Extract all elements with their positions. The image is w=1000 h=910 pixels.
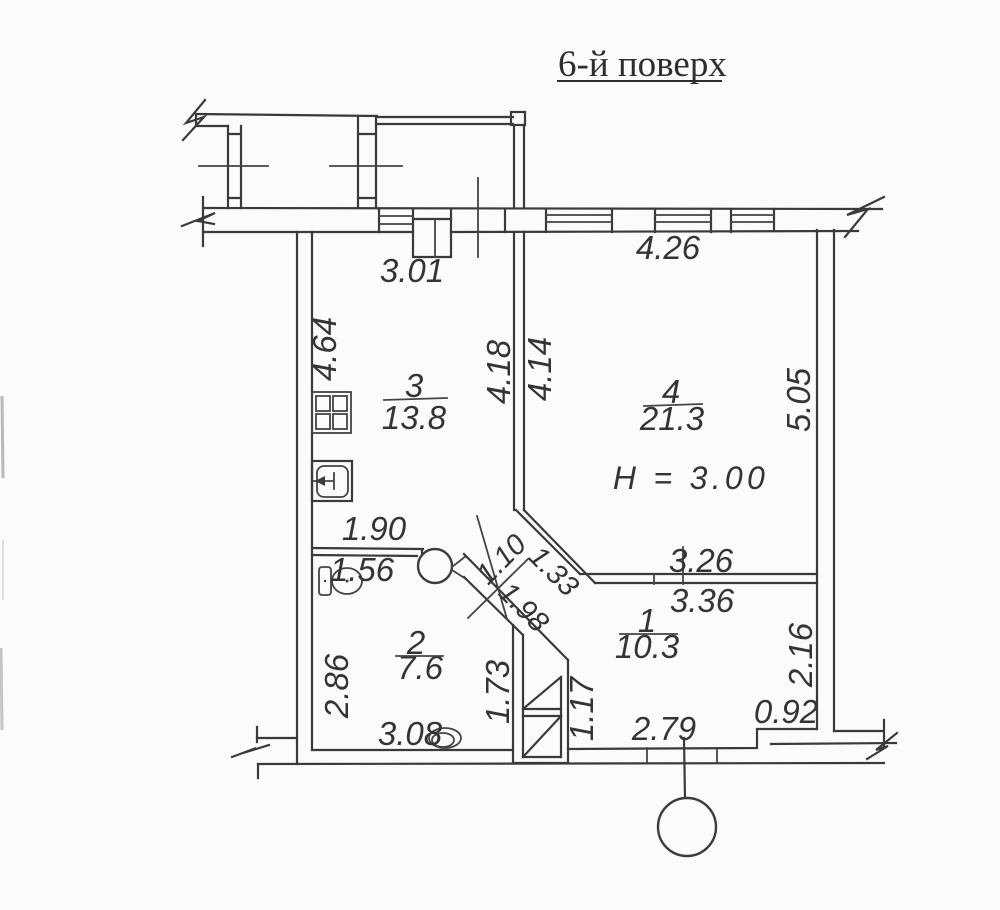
svg-text:0.92: 0.92 — [754, 693, 818, 730]
svg-text:6-й поверх: 6-й поверх — [558, 44, 727, 85]
svg-text:3.36: 3.36 — [670, 582, 735, 619]
svg-text:4.14: 4.14 — [521, 337, 558, 401]
svg-text:2.79: 2.79 — [631, 710, 696, 747]
svg-text:4.64: 4.64 — [306, 317, 343, 381]
svg-text:13.8: 13.8 — [382, 399, 447, 436]
svg-text:1.90: 1.90 — [342, 510, 407, 547]
svg-text:1.73: 1.73 — [479, 659, 516, 724]
svg-text:3.08: 3.08 — [378, 715, 443, 752]
svg-text:4.18: 4.18 — [480, 339, 517, 404]
svg-text:3.01: 3.01 — [380, 252, 444, 289]
svg-text:5.05: 5.05 — [780, 367, 817, 432]
svg-text:2.86: 2.86 — [318, 653, 355, 719]
svg-text:4.26: 4.26 — [636, 229, 701, 266]
svg-text:1.17: 1.17 — [563, 675, 600, 741]
svg-text:3.26: 3.26 — [669, 542, 734, 579]
svg-text:1.56: 1.56 — [330, 551, 395, 588]
svg-text:H = 3.00: H = 3.00 — [613, 460, 769, 496]
svg-text:2.16: 2.16 — [782, 622, 819, 688]
svg-text:7.6: 7.6 — [397, 649, 444, 686]
